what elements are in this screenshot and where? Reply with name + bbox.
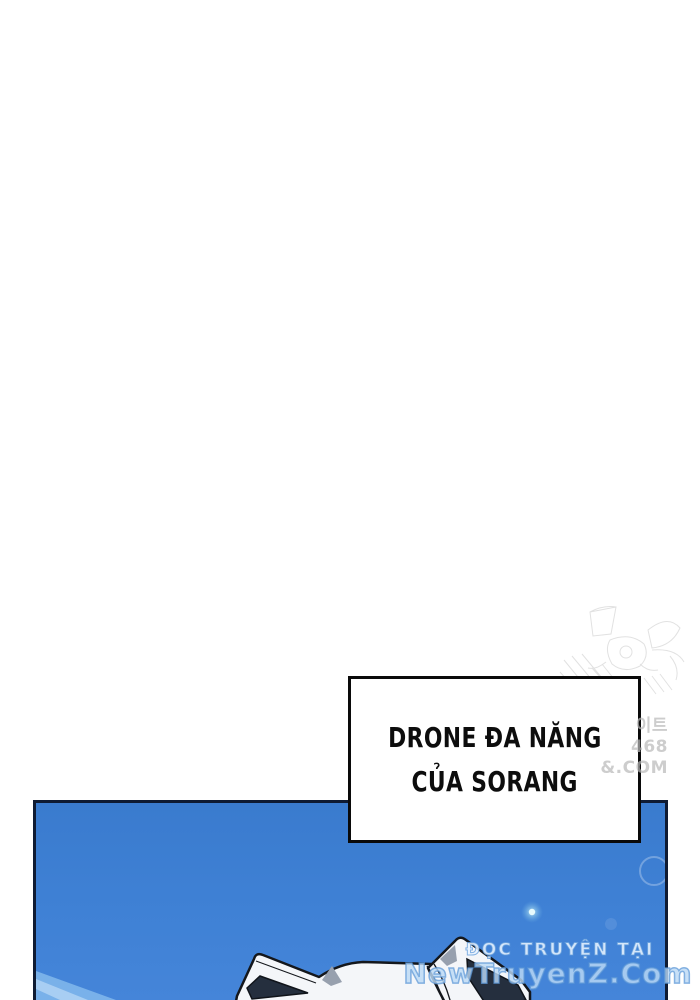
robot-cat-head [234, 938, 530, 1000]
side-watermark: 이트 468 &.COM [598, 716, 668, 779]
comic-page: 이트 468 &.COM [0, 0, 700, 1000]
sketch-wing [648, 621, 684, 680]
caption-line-2: CỦA SORANG [411, 760, 577, 804]
bubble-small [605, 918, 617, 930]
side-watermark-line-3: &.COM [598, 758, 668, 779]
bubble [640, 857, 665, 885]
glow-particle-core [529, 909, 535, 915]
side-watermark-line-2: 468 [598, 737, 668, 758]
caption-line-1: DRONE ĐA NĂNG [388, 716, 602, 760]
side-watermark-line-1: 이트 [598, 716, 668, 737]
sketch-eye [620, 646, 632, 658]
sketch-cup [590, 607, 616, 636]
